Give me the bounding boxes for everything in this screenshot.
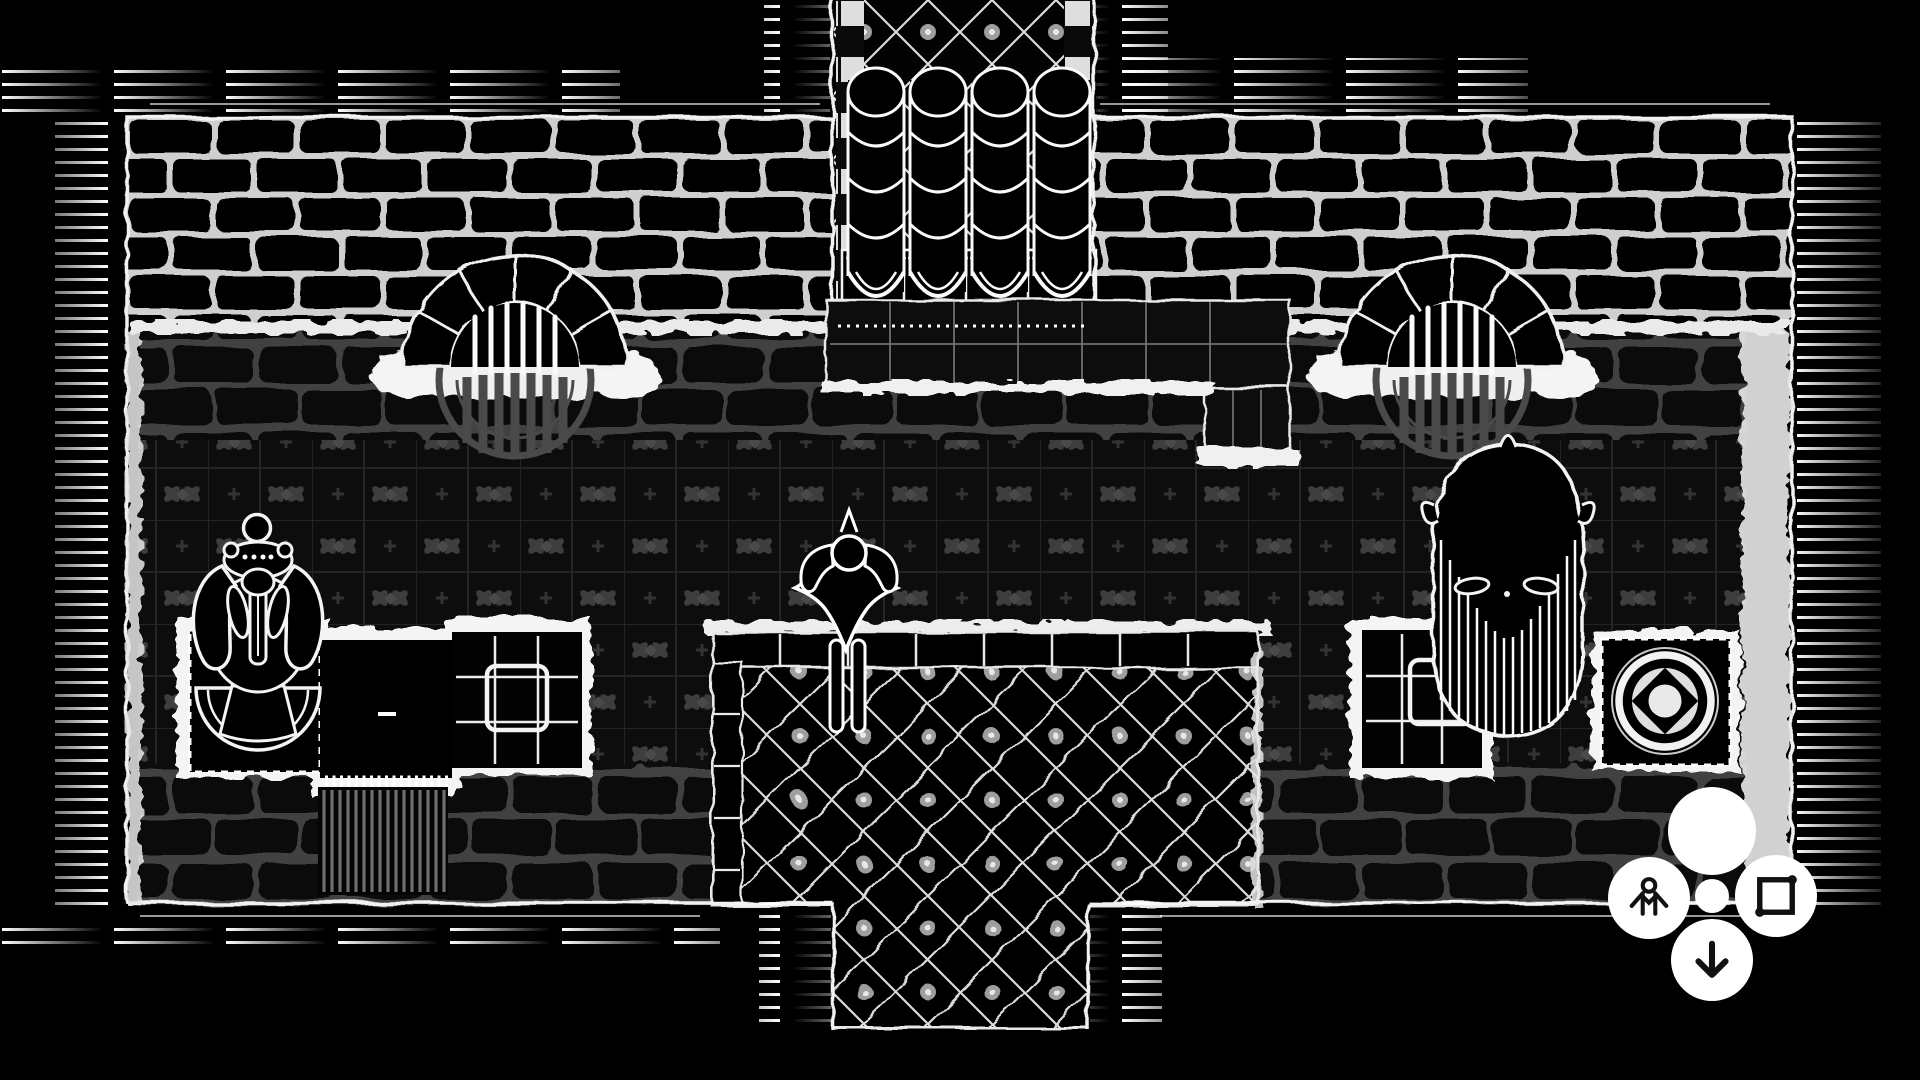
- bearded-head-statue[interactable]: [1422, 436, 1594, 738]
- select-area-button[interactable]: [1735, 855, 1817, 937]
- square-icon: [1753, 873, 1799, 919]
- seal-mat: [1602, 639, 1730, 765]
- primary-action-button[interactable]: [1668, 787, 1756, 875]
- runner-rug: [318, 787, 448, 895]
- west-wall-edge: [127, 332, 142, 904]
- black-table: [320, 640, 452, 782]
- hub-dot-button[interactable]: [1695, 879, 1729, 913]
- arrow-down-icon: [1689, 937, 1735, 983]
- quilt-tile-left: [452, 632, 582, 768]
- game-stage: [0, 0, 1920, 1080]
- move-down-button[interactable]: [1671, 919, 1753, 1001]
- character-token-button[interactable]: [1608, 857, 1690, 939]
- person-icon: [1627, 876, 1671, 920]
